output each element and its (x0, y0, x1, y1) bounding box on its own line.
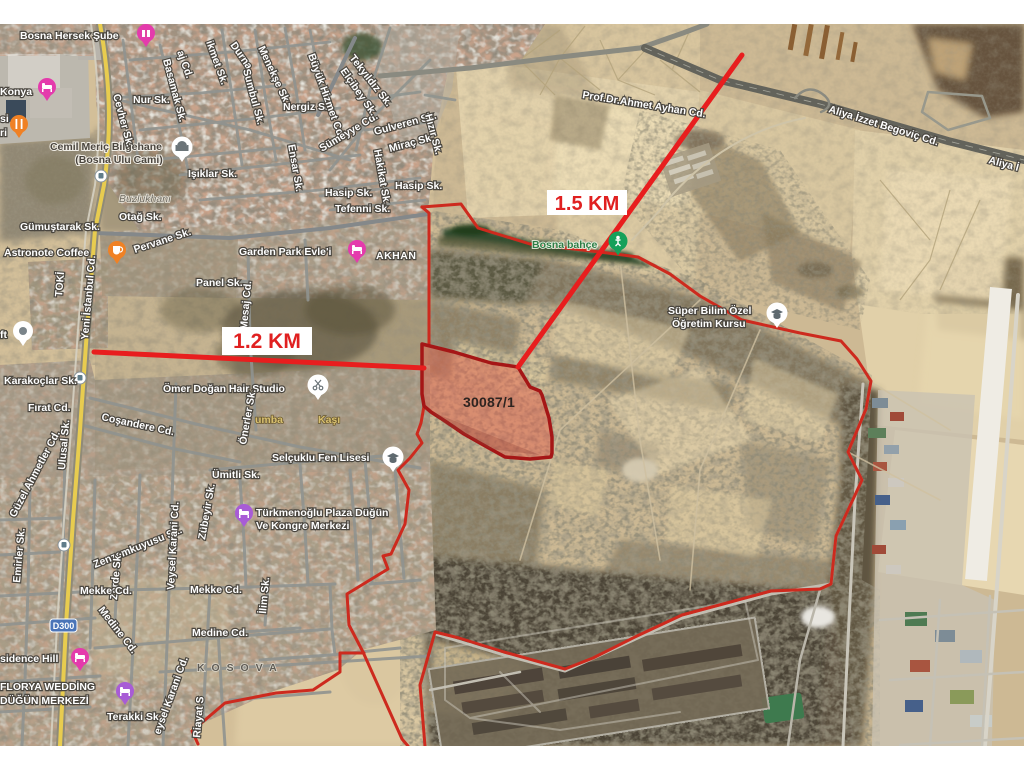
svg-text:AKHAN: AKHAN (376, 250, 416, 262)
svg-text:Garden Park Evle'i: Garden Park Evle'i (239, 246, 331, 258)
svg-text:Nur Sk.: Nur Sk. (133, 94, 170, 106)
svg-text:Türkmenoğlu Plaza Düğün: Türkmenoğlu Plaza Düğün (256, 507, 388, 519)
svg-text:Karakoçlar Sk.: Karakoçlar Sk. (4, 375, 77, 387)
svg-text:Buzlukhanı: Buzlukhanı (119, 193, 171, 205)
svg-text:si: si (0, 113, 9, 125)
svg-text:Panel Sk.: Panel Sk. (196, 277, 243, 289)
svg-text:FLORYA WEDDİNG: FLORYA WEDDİNG (0, 680, 95, 693)
svg-text:TOKİ: TOKİ (52, 271, 67, 297)
svg-text:Tefenni Sk.: Tefenni Sk. (335, 203, 390, 215)
svg-text:Bosna bahçe: Bosna bahçe (532, 239, 598, 251)
svg-text:1.5 KM: 1.5 KM (555, 193, 619, 215)
svg-text:D300: D300 (53, 621, 75, 631)
svg-text:Gümuştarak Sk.: Gümuştarak Sk. (20, 221, 100, 233)
svg-text:Bosna Hersek Şube: Bosna Hersek Şube (20, 30, 119, 42)
svg-text:Selçuklu Fen Lisesi: Selçuklu Fen Lisesi (272, 452, 370, 464)
svg-text:Işıklar Sk.: Işıklar Sk. (188, 168, 237, 180)
svg-text:Süper Bilim Özel: Süper Bilim Özel (668, 304, 752, 317)
svg-text:(Bosna Ulu Cami): (Bosna Ulu Cami) (75, 154, 163, 166)
svg-text:DÜĞÜN MERKEZİ: DÜĞÜN MERKEZİ (0, 694, 89, 707)
svg-text:ri: ri (0, 127, 7, 139)
svg-text:Astronote Coffee: Astronote Coffee (4, 247, 89, 259)
svg-text:sidence Hill: sidence Hill (0, 653, 58, 665)
svg-text:umba: umba (255, 414, 283, 426)
svg-text:Hasip Sk.: Hasip Sk. (395, 180, 442, 192)
svg-text:Kaşı: Kaşı (318, 414, 340, 426)
svg-text:Cemil Meriç Bilgehane: Cemil Meriç Bilgehane (50, 141, 162, 153)
svg-text:Otağ Sk.: Otağ Sk. (119, 211, 162, 223)
svg-text:Mekke Cd.: Mekke Cd. (80, 585, 132, 597)
svg-text:Ve Kongre Merkezi: Ve Kongre Merkezi (256, 520, 349, 532)
svg-text:Medine Cd.: Medine Cd. (192, 627, 248, 639)
svg-text:Mekke Cd.: Mekke Cd. (190, 584, 242, 596)
svg-text:Hasip Sk.: Hasip Sk. (325, 187, 372, 199)
svg-text:1.2 KM: 1.2 KM (233, 330, 301, 353)
svg-text:30087/1: 30087/1 (463, 394, 515, 410)
svg-text:K O S O V A: K O S O V A (197, 662, 279, 674)
svg-text:Konya: Konya (0, 86, 32, 98)
svg-text:Ümitli Sk.: Ümitli Sk. (212, 468, 260, 481)
svg-text:Fırat Cd.: Fırat Cd. (28, 402, 71, 414)
svg-text:ft: ft (0, 329, 7, 341)
svg-text:Öğretim Kursu: Öğretim Kursu (672, 317, 746, 330)
svg-text:Terakki Sk.: Terakki Sk. (107, 711, 162, 723)
svg-text:Ömer Doğan Hair Studio: Ömer Doğan Hair Studio (163, 382, 285, 395)
